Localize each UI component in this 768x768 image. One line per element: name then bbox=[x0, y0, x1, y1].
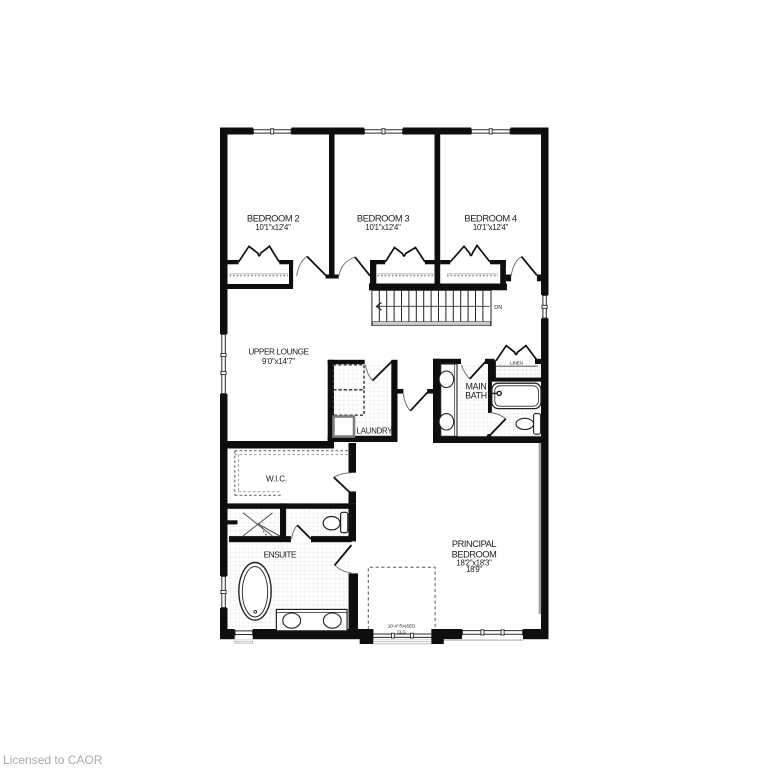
svg-text:UPPER LOUNGE: UPPER LOUNGE bbox=[248, 348, 309, 357]
svg-text:BATH: BATH bbox=[465, 391, 487, 401]
svg-text:PRINCIPAL: PRINCIPAL bbox=[452, 539, 497, 549]
svg-text:CLG: CLG bbox=[397, 630, 406, 635]
svg-text:ENSUITE: ENSUITE bbox=[264, 550, 297, 560]
svg-text:LAUNDRY: LAUNDRY bbox=[357, 427, 394, 436]
svg-text:10'-4" RAISED: 10'-4" RAISED bbox=[388, 623, 416, 628]
svg-text:LINEN: LINEN bbox=[510, 361, 523, 366]
svg-text:18'9": 18'9" bbox=[466, 565, 482, 574]
svg-text:10'1"x12'4": 10'1"x12'4" bbox=[255, 223, 291, 232]
svg-text:10'1"x12'4": 10'1"x12'4" bbox=[473, 223, 509, 232]
svg-text:9'0"x14'7": 9'0"x14'7" bbox=[262, 357, 295, 366]
svg-text:DN: DN bbox=[494, 305, 502, 311]
svg-text:W.I.C.: W.I.C. bbox=[266, 475, 287, 484]
svg-text:10'1"x12'4": 10'1"x12'4" bbox=[365, 223, 401, 232]
